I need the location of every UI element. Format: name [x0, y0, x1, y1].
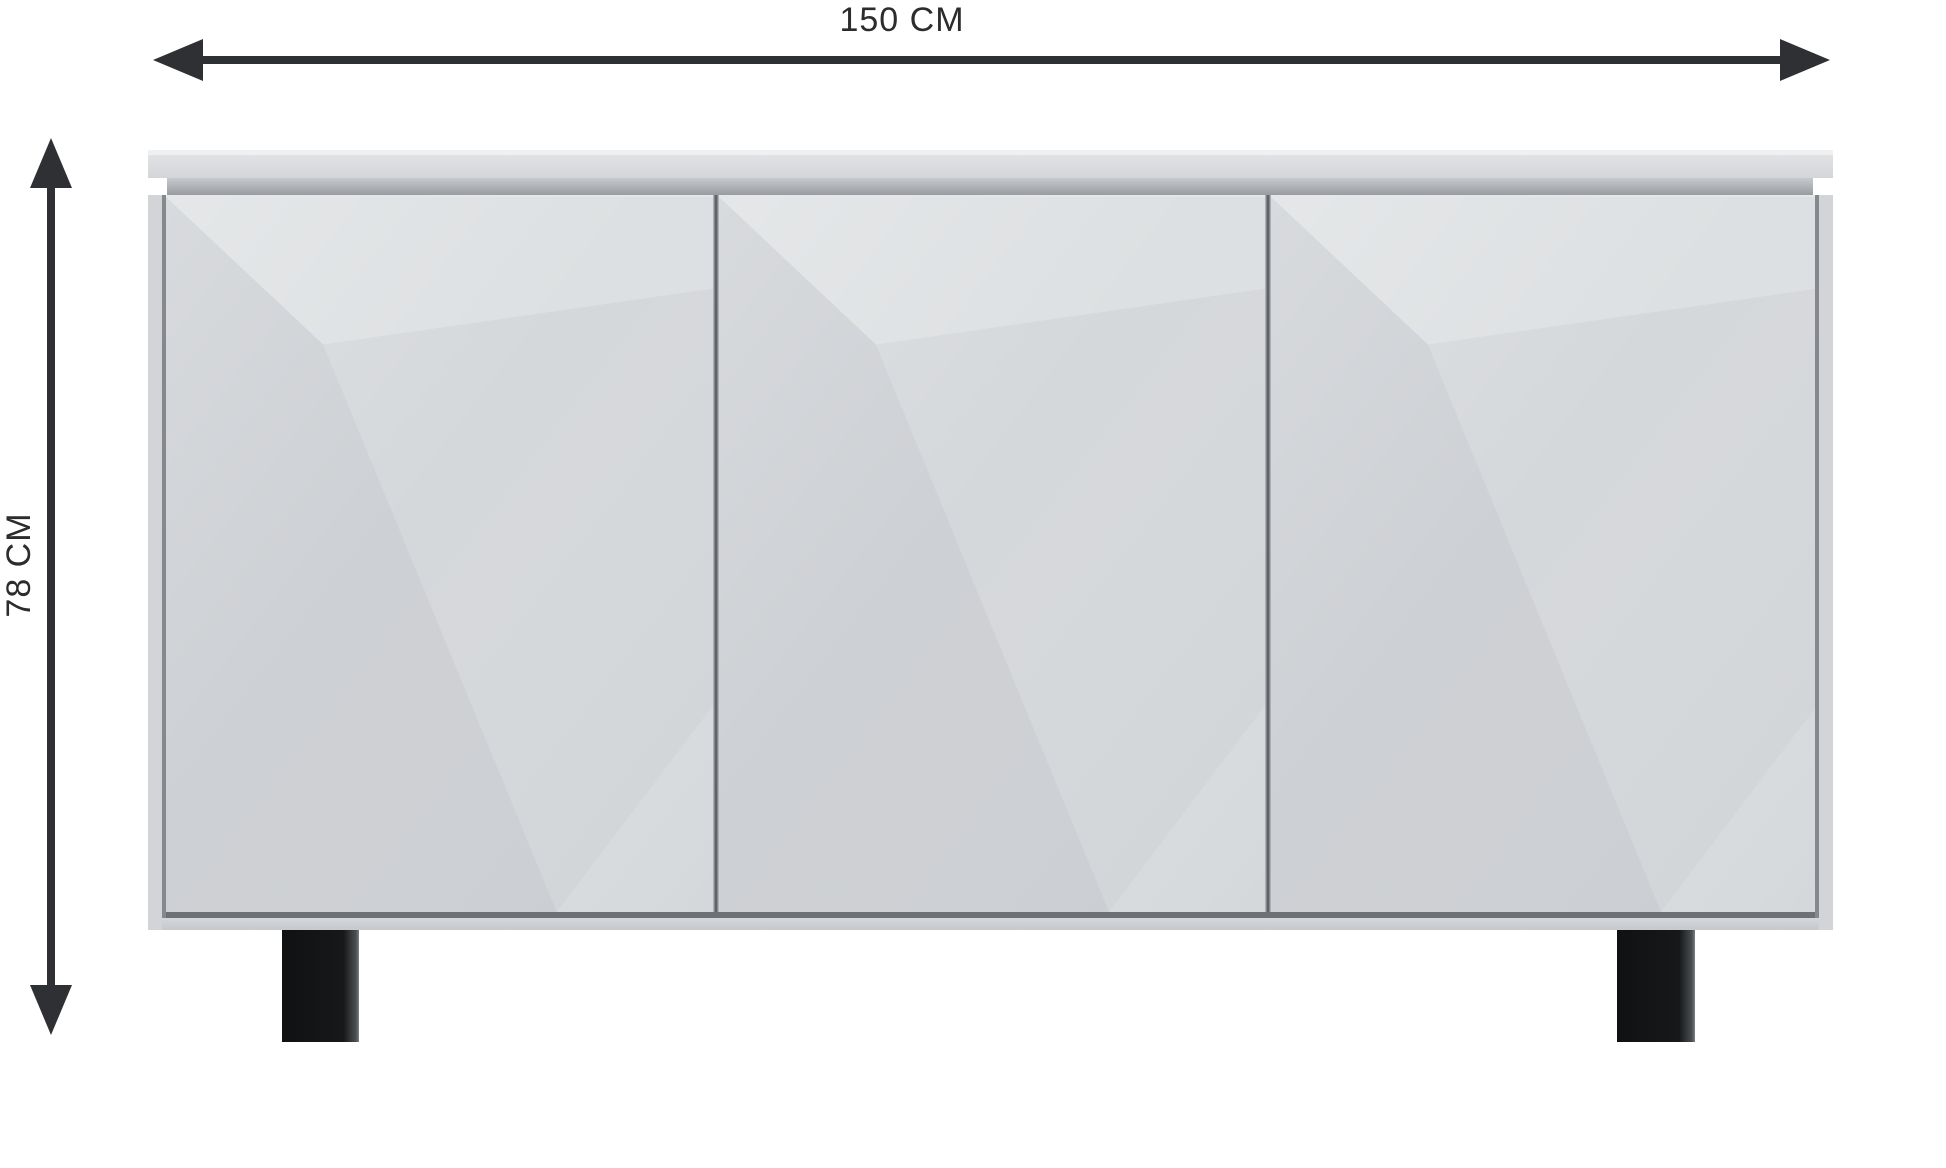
- door-panel-right: [1271, 195, 1817, 912]
- arrowhead-up-icon: [30, 138, 72, 188]
- cabinet-base-strip: [162, 918, 1819, 930]
- door-facet-graphic: [1271, 197, 1817, 912]
- cabinet-side-panel-right: [1819, 195, 1833, 930]
- arrowhead-right-icon: [1780, 39, 1830, 81]
- dimension-diagram: 150 CM 78 CM: [0, 0, 1946, 1168]
- cabinet-top-slab: [148, 155, 1833, 178]
- width-dimension-line: [196, 56, 1786, 64]
- door-facet-graphic: [166, 197, 713, 912]
- cabinet-side-panel-left: [148, 195, 162, 930]
- cabinet-leg-right: [1617, 930, 1695, 1042]
- door-panel-middle: [719, 195, 1265, 912]
- under-top-shadow: [167, 178, 1813, 195]
- door-panel-left: [166, 195, 713, 912]
- cabinet-leg-left: [282, 930, 359, 1042]
- door-facet-graphic: [719, 197, 1265, 912]
- height-dimension-line: [47, 186, 55, 988]
- width-dimension-label: 150 CM: [752, 0, 1052, 40]
- arrowhead-left-icon: [153, 39, 203, 81]
- height-dimension-label: 78 CM: [0, 465, 39, 665]
- arrowhead-down-icon: [30, 985, 72, 1035]
